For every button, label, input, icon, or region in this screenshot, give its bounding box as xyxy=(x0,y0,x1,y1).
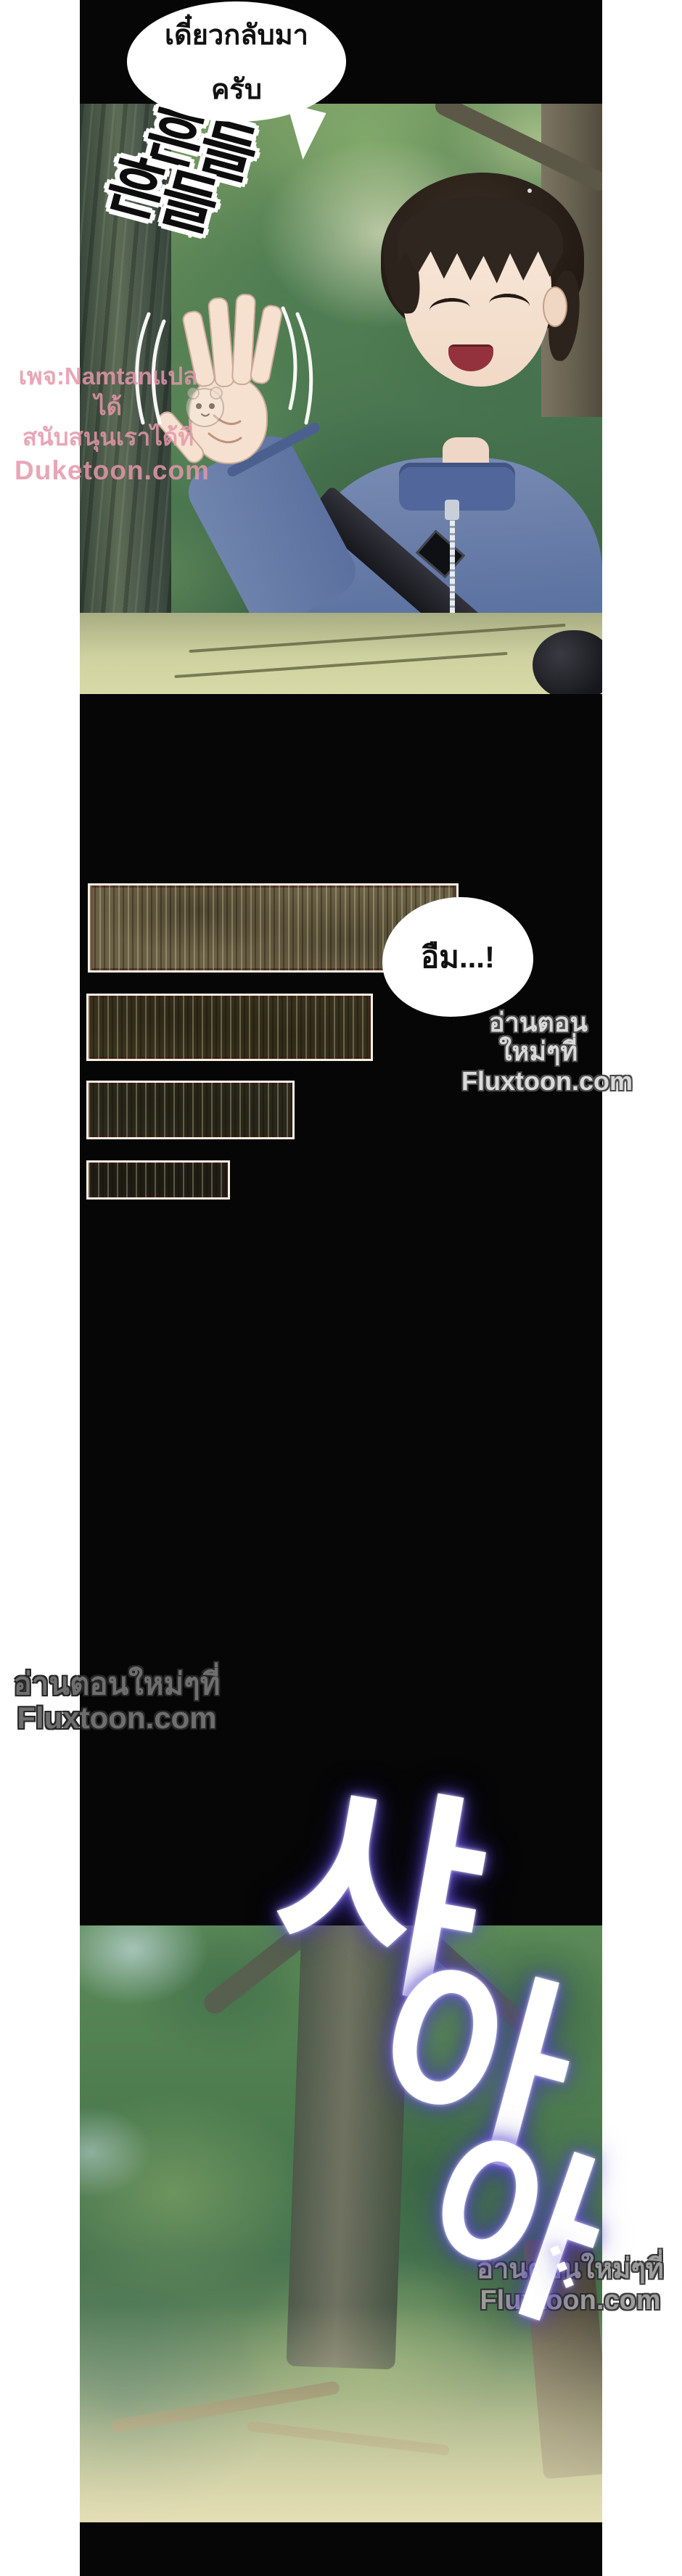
fluxtoon-watermark-left: อ่านตอนใหม่ๆที่ Fluxtoon.com xyxy=(13,1667,221,1735)
fluxtoon-watermark-right: อ่านตอนใหม่ๆที่ Fluxtoon.com xyxy=(461,1008,615,1096)
bar-texture xyxy=(89,1163,228,1197)
translator-watermark-line2: สนับสนุนเราได้ที่ xyxy=(15,422,202,453)
speech-bubble-top: เดี๋ยวกลับมา ครับ xyxy=(127,1,346,122)
translator-watermark-line3: Duketoon.com xyxy=(15,453,202,487)
redacted-bar-2 xyxy=(86,994,373,1061)
fluxtoon-right-line2: Fluxtoon.com xyxy=(461,1067,615,1096)
bubble-text-line1: เดี๋ยวกลับมา xyxy=(165,12,308,57)
bubble-text-line2: ครับ xyxy=(211,67,262,111)
fluxtoon-left-line1: อ่านตอนใหม่ๆที่ xyxy=(13,1667,221,1701)
redacted-bar-3 xyxy=(86,1081,295,1139)
translator-watermark-line1: เพจ:Namtanแปลได้ xyxy=(15,361,202,422)
webtoon-page: 흔들 흔들 เดี๋ยวกลับมา ครับ เพจ:Namtanแปลได้… xyxy=(0,0,682,2576)
redacted-bar-4 xyxy=(86,1160,230,1200)
bar-texture xyxy=(89,996,371,1059)
bar-texture xyxy=(89,1083,292,1137)
translator-watermark: เพจ:Namtanแปลได้ สนับสนุนเราได้ที่ Duket… xyxy=(15,361,202,487)
hamster-mascot-sticker xyxy=(181,383,228,429)
ground-path xyxy=(80,613,602,694)
bubble-mid-text: อืม...! xyxy=(421,933,495,981)
fluxtoon-left-line2: Fluxtoon.com xyxy=(13,1701,221,1735)
fluxtoon-right-line1: อ่านตอนใหม่ๆที่ xyxy=(461,1008,615,1067)
